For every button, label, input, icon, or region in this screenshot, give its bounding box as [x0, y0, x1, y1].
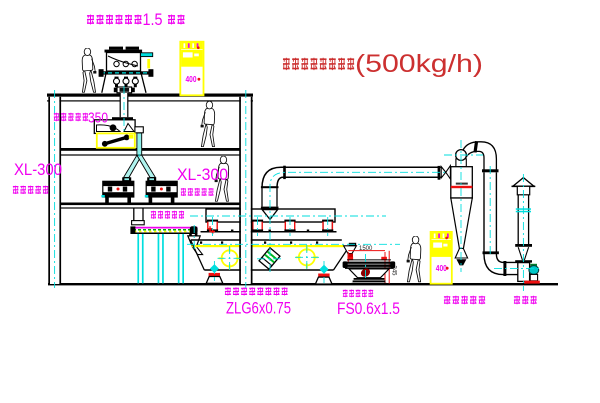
- svg-text:FS0.6x1.5: FS0.6x1.5: [337, 299, 400, 318]
- svg-text:350: 350: [88, 110, 108, 127]
- svg-text:XL-300: XL-300: [177, 165, 228, 184]
- svg-text:400: 400: [186, 75, 197, 84]
- svg-text:ZLG6x0.75: ZLG6x0.75: [226, 299, 291, 318]
- svg-text:(500kg/h): (500kg/h): [355, 50, 483, 78]
- svg-text:1.5: 1.5: [143, 11, 163, 29]
- svg-text:1500: 1500: [359, 246, 373, 252]
- svg-text:XL-300: XL-300: [14, 160, 62, 179]
- svg-text:400: 400: [436, 264, 447, 273]
